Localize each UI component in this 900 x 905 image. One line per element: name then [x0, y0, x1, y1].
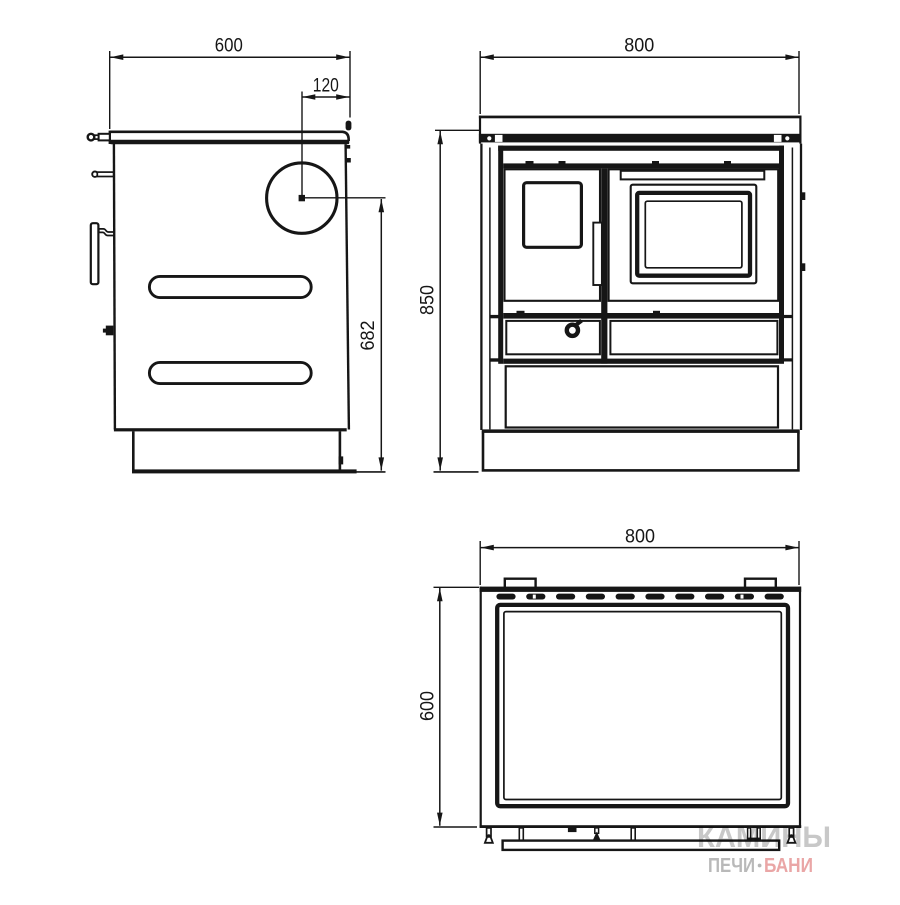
svg-text:600: 600 — [417, 691, 439, 721]
svg-text:600: 600 — [215, 35, 243, 57]
svg-text:120: 120 — [313, 74, 339, 96]
svg-text:БАНИ: БАНИ — [764, 854, 813, 877]
svg-text:800: 800 — [625, 526, 655, 548]
svg-text:850: 850 — [417, 285, 439, 315]
svg-text:КАМИНЫ: КАМИНЫ — [697, 821, 831, 854]
svg-text:800: 800 — [624, 34, 654, 56]
svg-text:ПЕЧИ: ПЕЧИ — [708, 854, 755, 877]
svg-text:682: 682 — [357, 321, 379, 351]
